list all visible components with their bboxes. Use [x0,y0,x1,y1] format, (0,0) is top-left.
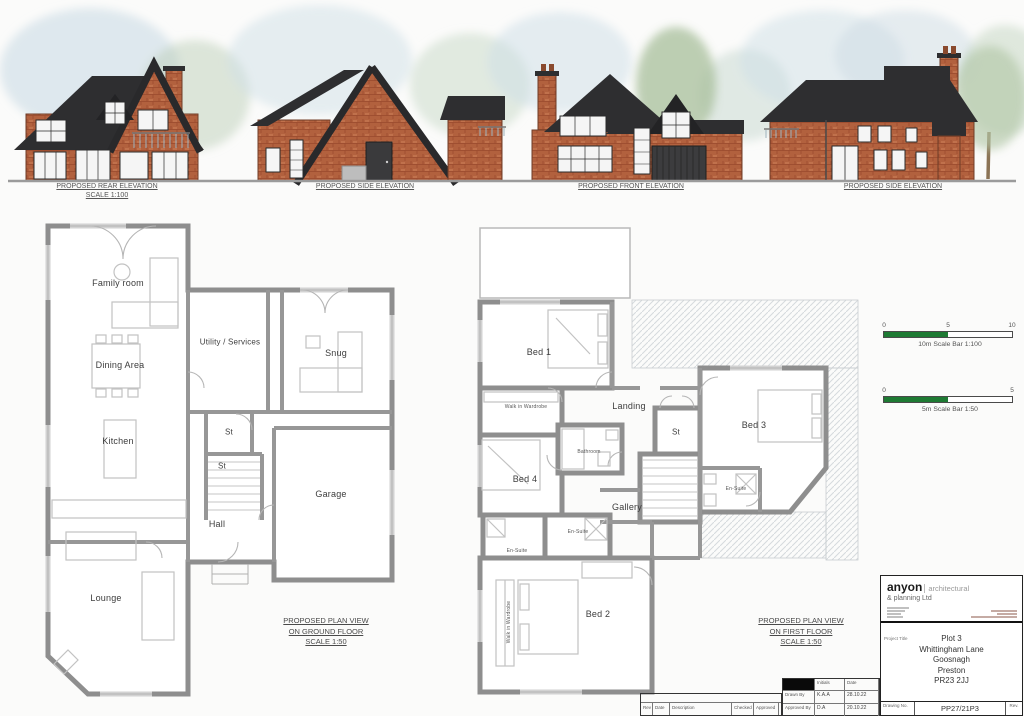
room-label-kitchen: Kitchen [102,436,133,446]
project-title-label: Project Title [884,636,908,641]
revision-table: Rev Date Description Checked Approved [640,693,782,716]
room-label-wiw-2: Walk in Wardrobe [506,601,512,644]
room-label-snug: Snug [325,348,347,358]
room-label-garage: Garage [315,489,346,499]
drawn-by-label: Drawn By [783,691,815,704]
room-label-bed-1: Bed 1 [527,347,552,357]
room-label-st-2: St [218,462,226,471]
description-col-header: Description [670,703,732,715]
first-floor-caption: PROPOSED PLAN VIEW ON FIRST FLOOR SCALE … [758,616,843,648]
company-contact-lines [971,609,1017,618]
room-label-st-ff: St [672,428,680,437]
room-label-hall: Hall [209,519,225,529]
scale-bar-50: 0 5 5m Scale Bar 1:50 [880,387,1020,413]
drawing-artwork [0,0,1024,716]
drawn-by-date: 28.10.22 [845,691,879,704]
company-sub: & planning Ltd [887,595,1016,602]
rear-elevation-label: PROPOSED REAR ELEVATION SCALE 1:100 [56,182,157,200]
scale-bar-100: 0 5 10 10m Scale Bar 1:100 [880,322,1020,348]
scale-bar-100-fill [884,332,948,337]
project-panel: Project Title Plot 3 Whittingham Lane Go… [881,634,1022,701]
initials-header: Initials [815,679,845,691]
room-label-dining-area: Dining Area [96,360,145,370]
room-label-landing: Landing [612,401,645,411]
company-logo-panel: anyonarchitectural & planning Ltd [881,576,1022,623]
front-elevation-label: PROPOSED FRONT ELEVATION [578,182,684,191]
checked-col-header: Checked [732,703,754,715]
approved-by-label: Approved By [783,704,815,716]
drawing-number-row: Drawing No. PP27/21P3 Rev. [881,701,1022,715]
revision-empty-row [641,694,781,703]
room-label-bathroom: Bathroom [577,449,600,455]
planning-drawing-sheet: PROPOSED REAR ELEVATION SCALE 1:100 PROP… [0,0,1024,716]
rev-col-header: Rev [641,703,653,715]
drawing-no: PP27/21P3 [915,702,1005,715]
room-label-ensuite-mid: En-Suite [568,529,589,535]
room-label-ensuite-3: En-Suite [726,486,747,492]
project-address: Plot 3 Whittingham Lane Goosnagh Preston… [881,634,1022,687]
sign-off-table: Initials Date Drawn By K.A.A 28.10.22 Ap… [782,678,880,716]
room-label-lounge: Lounge [90,593,121,603]
company-address-lines [887,606,909,618]
room-label-bed-3: Bed 3 [742,420,767,430]
date-header: Date [845,679,879,691]
room-label-gallery: Gallery [612,502,642,512]
room-label-ensuite-left: En-Suite [507,548,528,554]
approved-col-header: Approved [754,703,779,715]
room-label-wiw-1: Walk in Wardrobe [505,404,548,410]
side-elevation-label-2: PROPOSED SIDE ELEVATION [844,182,942,191]
room-label-family-room: Family room [92,278,144,288]
sign-off-blank-cell [783,679,815,691]
room-label-utility: Utility / Services [200,338,261,347]
date-col-header: Date [653,703,670,715]
room-label-bed-2: Bed 2 [586,609,611,619]
company-type: architectural [924,584,969,593]
ground-floor-caption: PROPOSED PLAN VIEW ON GROUND FLOOR SCALE… [283,616,368,648]
approved-by-initials: D.A [815,704,845,716]
drawn-by-initials: K.A.A [815,691,845,704]
title-block: anyonarchitectural & planning Ltd Projec… [880,575,1023,716]
scale-bar-50-fill [884,397,948,402]
drawing-no-label: Drawing No. [881,702,915,715]
company-name: anyon [887,580,922,594]
rev-label: Rev. [1005,702,1022,715]
room-label-bed-4: Bed 4 [513,474,538,484]
room-label-st-1: St [225,428,233,437]
approved-by-date: 20.10.22 [845,704,879,716]
side-elevation-label-1: PROPOSED SIDE ELEVATION [316,182,414,191]
